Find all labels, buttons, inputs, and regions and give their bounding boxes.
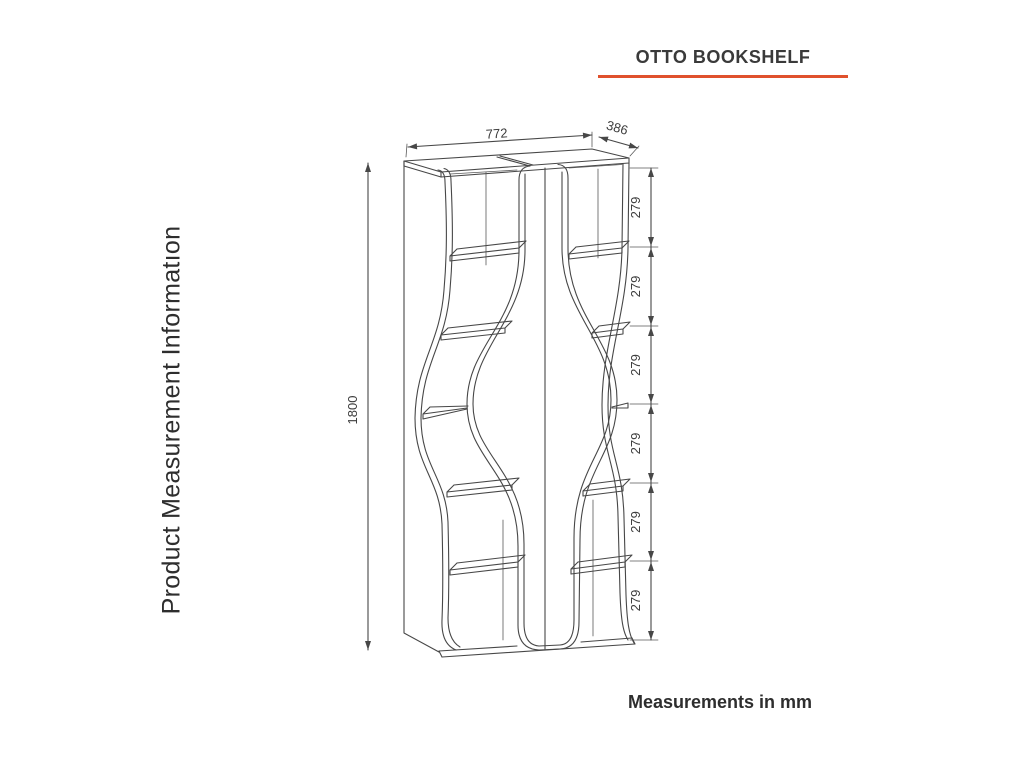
dim-segment-label: 279 <box>628 433 643 455</box>
shelf <box>441 321 512 340</box>
shelf <box>583 479 630 496</box>
dim-width-label: 772 <box>485 125 508 141</box>
shelves-right <box>569 241 632 574</box>
dim-depth-label: 386 <box>605 117 630 137</box>
center-divider <box>467 165 617 651</box>
bookshelf-technical-drawing: 772 386 1800 <box>0 0 1024 768</box>
dim-segment-label: 279 <box>628 511 643 533</box>
units-note: Measurements in mm <box>628 692 812 713</box>
dimension-shelf-chain: 279 279 279 279 279 279 <box>628 168 658 640</box>
shelf <box>569 241 629 259</box>
shelf <box>450 241 526 261</box>
dim-height-label: 1800 <box>345 396 360 425</box>
dimension-height: 1800 <box>345 163 371 650</box>
top-face <box>404 149 629 177</box>
dim-segment-label: 279 <box>628 276 643 298</box>
shelf <box>592 322 630 338</box>
shelf <box>450 555 525 575</box>
right-side-panel <box>602 163 634 643</box>
shelves-left <box>423 241 526 575</box>
dim-segment-label: 279 <box>628 590 643 612</box>
shelf-pointed <box>423 406 468 419</box>
dim-segment-label: 279 <box>628 354 643 376</box>
dimension-depth: 386 <box>598 117 639 156</box>
shelf-pointed <box>612 403 628 408</box>
base-board <box>439 638 635 657</box>
dim-segment-label: 279 <box>628 197 643 219</box>
measurement-sheet: OTTO BOOKSHELF Product Measurement Infor… <box>0 0 1024 768</box>
dimension-width: 772 <box>406 125 592 157</box>
